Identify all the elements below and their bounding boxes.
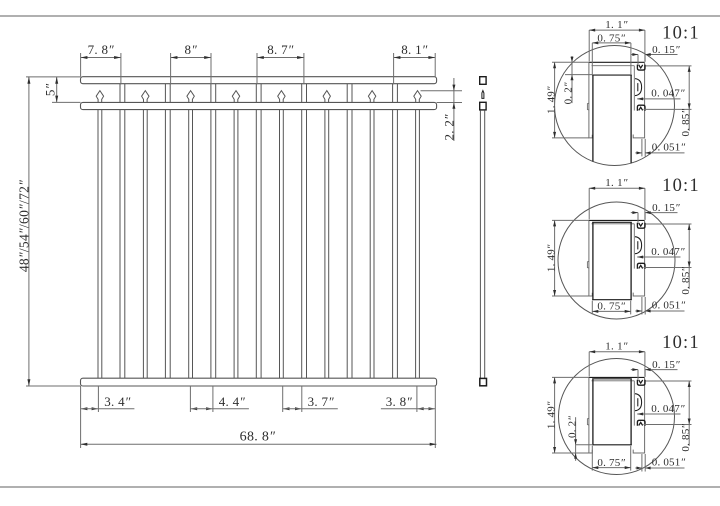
svg-text:2. 2″: 2. 2″ (442, 114, 457, 141)
svg-text:4. 4″: 4. 4″ (219, 394, 246, 409)
svg-text:5″: 5″ (42, 83, 57, 96)
svg-text:48″/54″/60″/72″: 48″/54″/60″/72″ (17, 180, 32, 272)
svg-text:0. 85″: 0. 85″ (680, 424, 692, 452)
svg-text:0. 75″: 0. 75″ (597, 32, 625, 44)
svg-text:0. 15″: 0. 15″ (652, 359, 680, 371)
svg-text:0. 75″: 0. 75″ (597, 301, 625, 313)
svg-text:0. 051″: 0. 051″ (652, 457, 686, 469)
svg-text:3. 7″: 3. 7″ (308, 394, 335, 409)
svg-text:0. 85″: 0. 85″ (680, 267, 692, 295)
svg-text:0. 051″: 0. 051″ (652, 142, 686, 154)
svg-text:0. 047″: 0. 047″ (651, 403, 685, 415)
svg-text:0. 15″: 0. 15″ (652, 44, 680, 56)
svg-text:0. 75″: 0. 75″ (597, 457, 625, 469)
svg-text:1. 1″: 1. 1″ (605, 19, 628, 31)
svg-text:10:1: 10:1 (662, 23, 700, 43)
svg-text:3. 4″: 3. 4″ (104, 394, 131, 409)
svg-text:10:1: 10:1 (662, 333, 700, 353)
svg-text:0. 15″: 0. 15″ (652, 202, 680, 214)
svg-text:0. 047″: 0. 047″ (651, 246, 685, 258)
svg-text:8. 7″: 8. 7″ (267, 42, 294, 57)
svg-text:0. 2″: 0. 2″ (563, 82, 575, 104)
svg-text:68. 8″: 68. 8″ (240, 430, 276, 445)
svg-text:1. 49″: 1. 49″ (545, 244, 557, 272)
svg-text:1. 49″: 1. 49″ (545, 86, 557, 114)
svg-text:1. 1″: 1. 1″ (605, 177, 628, 189)
svg-text:0. 2″: 0. 2″ (566, 416, 578, 438)
svg-text:1. 49″: 1. 49″ (545, 401, 557, 429)
svg-text:0. 051″: 0. 051″ (652, 300, 686, 312)
svg-text:8. 1″: 8. 1″ (401, 42, 428, 57)
svg-text:7. 8″: 7. 8″ (88, 42, 115, 57)
svg-text:3. 8″: 3. 8″ (386, 394, 413, 409)
svg-text:8″: 8″ (185, 42, 198, 57)
svg-text:0. 85″: 0. 85″ (680, 108, 692, 136)
svg-text:1. 1″: 1. 1″ (605, 341, 628, 353)
svg-text:10:1: 10:1 (662, 176, 700, 196)
svg-text:0. 047″: 0. 047″ (651, 88, 685, 100)
